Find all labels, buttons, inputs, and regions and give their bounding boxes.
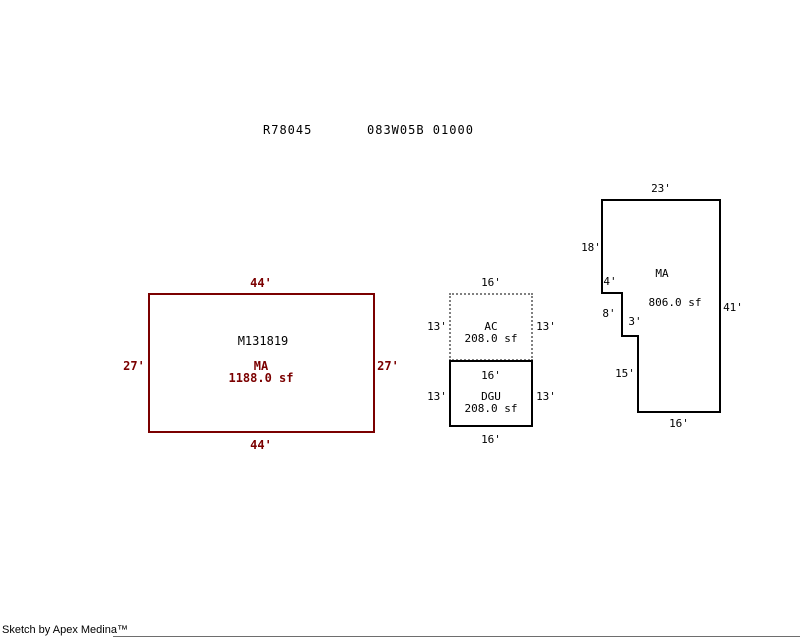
dgu-dim-left: 13' [427, 391, 447, 403]
main-left-dim-left: 27' [123, 360, 145, 372]
sketch-credit: Sketch by Apex Medina™ [2, 624, 128, 636]
ac-dim-left: 13' [427, 321, 447, 333]
ac-dim-right: 13' [536, 321, 556, 333]
main-left-dim-top: 44' [250, 277, 272, 289]
main-right-code: MA [655, 268, 668, 280]
dgu-dim-top: 16' [481, 370, 501, 382]
main-right-dim-right: 41' [723, 302, 743, 314]
main-right-dim-left-upper: 18' [581, 242, 601, 254]
main-right-area: 806.0 sf [649, 297, 702, 309]
ac-area: 208.0 sf [465, 333, 518, 345]
dgu-dim-right: 13' [536, 391, 556, 403]
main-right-dim-notch-down: 8' [602, 308, 615, 320]
main-left-id: M131819 [238, 335, 289, 347]
main-left-dim-right: 27' [377, 360, 399, 372]
footer-divider [113, 636, 800, 637]
main-right-dim-left-lower: 15' [615, 368, 635, 380]
account-number: R78045 [263, 123, 312, 137]
main-right-dim-notch-in2: 3' [628, 316, 641, 328]
main-right-dim-notch-in: 4' [603, 276, 616, 288]
dgu-dim-bottom: 16' [481, 434, 501, 446]
ac-dim-top: 16' [481, 277, 501, 289]
sketch-canvas: R78045 083W05B 01000 44' 44' 27' 27' M13… [0, 0, 800, 640]
main-right-dim-top: 23' [651, 183, 671, 195]
main-left-area: 1188.0 sf [228, 372, 293, 384]
dgu-area: 208.0 sf [465, 403, 518, 415]
parcel-number: 083W05B 01000 [367, 123, 474, 137]
main-right-dim-bottom: 16' [669, 418, 689, 430]
main-left-dim-bottom: 44' [250, 439, 272, 451]
